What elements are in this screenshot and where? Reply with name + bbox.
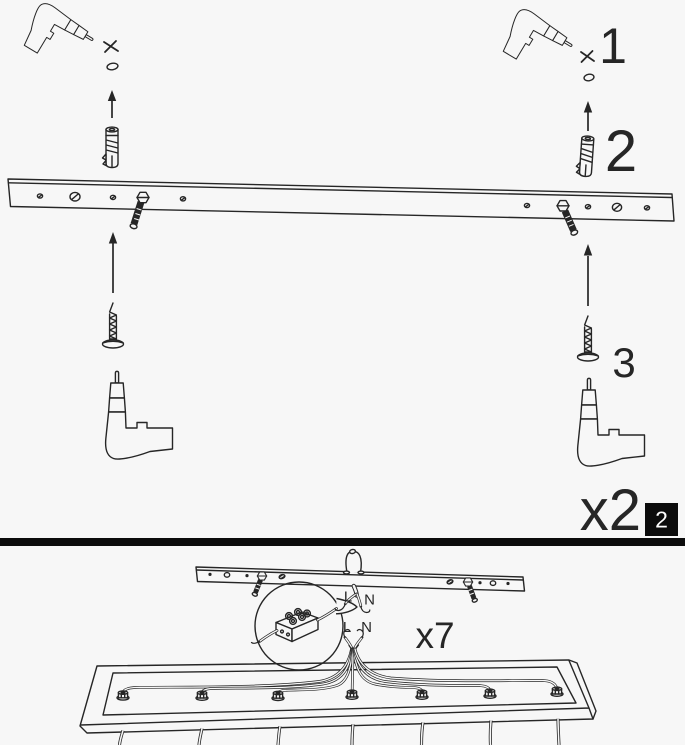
terminal-block-icon — [276, 609, 318, 642]
cord-grip-icon — [196, 691, 208, 700]
instruction-drawing: 1 2 3 x2 2 — [0, 0, 685, 745]
page-badge-number: 2 — [655, 507, 668, 533]
cable-clamp-icon — [344, 549, 365, 574]
wall-plug-icon — [576, 135, 594, 176]
mounting-bracket — [8, 179, 674, 236]
screwdriver-icon — [106, 371, 173, 459]
arrow-up-icon — [109, 232, 117, 293]
arrow-up-icon — [108, 90, 116, 118]
wire-label-neutral: N — [361, 619, 372, 636]
drilled-hole-icon — [584, 73, 595, 81]
cord-grip-icon — [551, 687, 563, 696]
section-divider — [0, 538, 685, 546]
cord-grip-icon — [484, 689, 496, 698]
quantity-label: x2 — [580, 478, 641, 543]
arrow-up-icon — [584, 244, 592, 306]
cord-grip-icon — [272, 691, 284, 700]
fixture-canopy — [80, 660, 596, 733]
mounting-bracket-installed — [196, 549, 525, 603]
arrow-up-icon — [584, 101, 592, 131]
drill-mark-x-icon — [581, 51, 594, 62]
wire-label-live: L — [343, 619, 351, 636]
detail-callout — [252, 582, 358, 670]
panel-mounting: 1 2 3 x2 2 — [8, 0, 678, 543]
step-number-plug: 2 — [605, 119, 637, 184]
quantity-label: x7 — [415, 615, 454, 656]
wire-label-neutral: N — [364, 592, 375, 609]
cord-grip-icon — [416, 690, 428, 699]
wall-plug-icon — [103, 127, 119, 167]
panel-wiring: L N L N x7 — [80, 549, 596, 745]
cord-grip-icon — [117, 691, 129, 700]
drill-icon — [18, 0, 97, 74]
screwdriver-icon — [578, 378, 645, 466]
wire-label-live: L — [344, 589, 352, 606]
screw-icon — [578, 316, 599, 361]
drilled-hole-icon — [107, 62, 119, 70]
page-badge: 2 — [645, 503, 678, 536]
instruction-sheet: 1 2 3 x2 2 — [0, 0, 685, 745]
cord-grip-icon — [346, 690, 358, 699]
step-number-drill: 1 — [599, 18, 627, 74]
drill-mark-x-icon — [104, 41, 118, 52]
drill-icon — [497, 6, 576, 80]
screw-icon — [103, 303, 124, 348]
step-number-screw: 3 — [612, 339, 635, 386]
